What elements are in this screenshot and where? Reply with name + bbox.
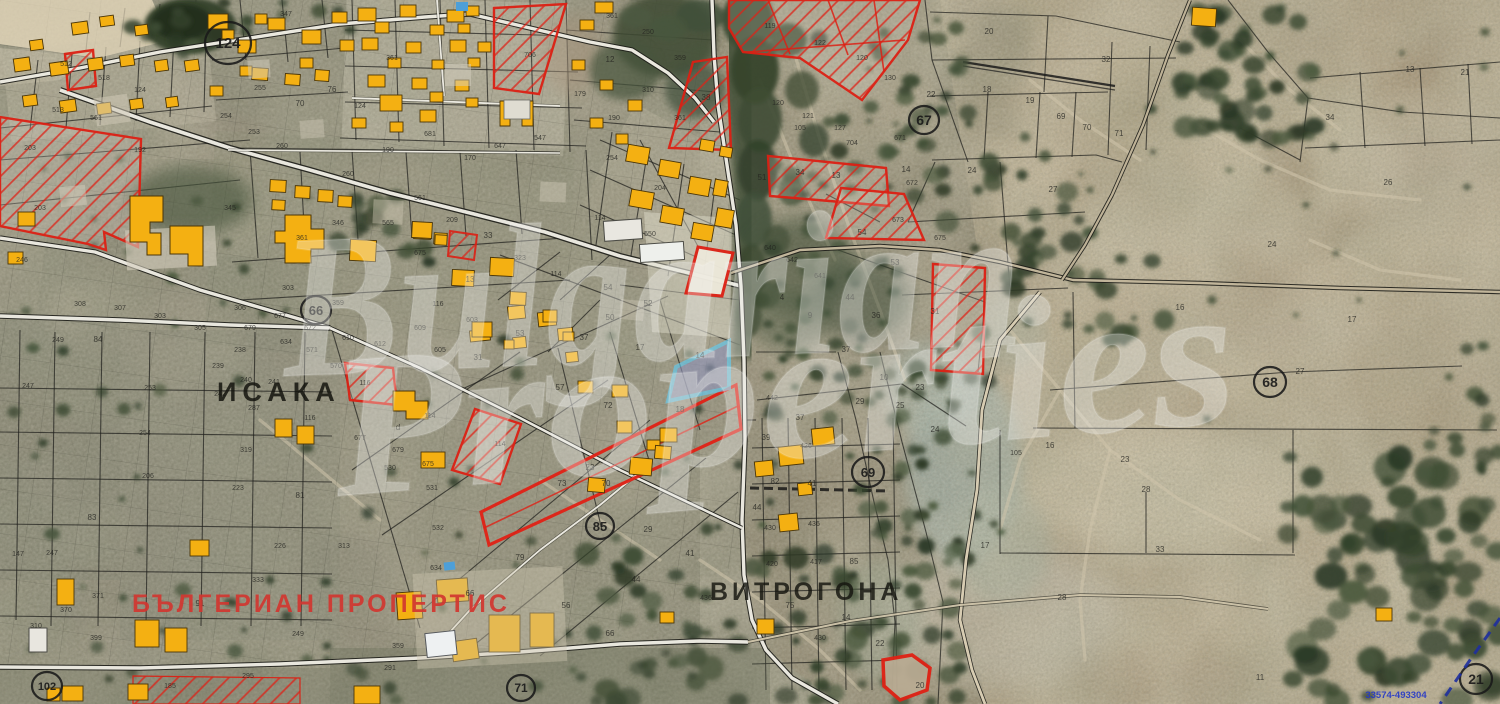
svg-text:203: 203 bbox=[34, 205, 46, 212]
svg-text:430: 430 bbox=[764, 525, 776, 532]
svg-text:67: 67 bbox=[916, 112, 932, 128]
svg-text:56: 56 bbox=[562, 601, 571, 610]
svg-text:310: 310 bbox=[642, 87, 654, 94]
svg-text:250: 250 bbox=[642, 29, 654, 36]
svg-text:306: 306 bbox=[234, 305, 246, 312]
svg-text:547: 547 bbox=[534, 135, 546, 142]
svg-text:347: 347 bbox=[280, 11, 292, 18]
svg-text:21: 21 bbox=[1468, 671, 1484, 687]
svg-text:190: 190 bbox=[608, 115, 620, 122]
svg-text:20: 20 bbox=[916, 681, 925, 690]
svg-text:239: 239 bbox=[212, 363, 224, 370]
svg-text:81: 81 bbox=[296, 491, 305, 500]
svg-text:247: 247 bbox=[22, 383, 34, 390]
svg-text:417: 417 bbox=[810, 559, 822, 566]
svg-text:120: 120 bbox=[772, 100, 784, 107]
svg-text:512: 512 bbox=[60, 61, 72, 68]
svg-text:26: 26 bbox=[1384, 178, 1393, 187]
svg-text:124: 124 bbox=[134, 87, 146, 94]
svg-text:513: 513 bbox=[52, 107, 64, 114]
svg-text:69: 69 bbox=[1057, 112, 1066, 121]
svg-text:19: 19 bbox=[1026, 96, 1035, 105]
svg-text:206: 206 bbox=[142, 473, 154, 480]
svg-text:122: 122 bbox=[814, 40, 826, 47]
svg-text:БЪЛГЕРИАН ПРОПЕРТИС: БЪЛГЕРИАН ПРОПЕРТИС bbox=[132, 590, 510, 618]
svg-text:130: 130 bbox=[884, 75, 896, 82]
svg-text:102: 102 bbox=[38, 681, 56, 693]
svg-text:27: 27 bbox=[1296, 367, 1305, 376]
svg-text:ВИТРОГОНА: ВИТРОГОНА bbox=[710, 578, 902, 606]
svg-text:38: 38 bbox=[702, 93, 711, 102]
svg-text:11: 11 bbox=[1256, 673, 1265, 682]
svg-text:124: 124 bbox=[215, 35, 241, 52]
svg-text:170: 170 bbox=[464, 155, 476, 162]
svg-text:17: 17 bbox=[981, 541, 990, 550]
svg-text:85: 85 bbox=[850, 557, 859, 566]
svg-text:370: 370 bbox=[60, 607, 72, 614]
svg-text:254: 254 bbox=[139, 430, 151, 437]
svg-text:18: 18 bbox=[983, 85, 992, 94]
svg-text:671: 671 bbox=[894, 135, 906, 142]
svg-text:291: 291 bbox=[384, 665, 396, 672]
svg-text:70: 70 bbox=[1083, 123, 1092, 132]
svg-text:71: 71 bbox=[1115, 129, 1124, 138]
svg-text:119: 119 bbox=[764, 23, 775, 30]
svg-text:121: 121 bbox=[802, 113, 814, 120]
svg-text:260: 260 bbox=[276, 143, 288, 150]
svg-text:27: 27 bbox=[1049, 185, 1058, 194]
svg-text:313: 313 bbox=[338, 543, 350, 550]
svg-text:253: 253 bbox=[144, 385, 156, 392]
svg-text:68: 68 bbox=[1262, 374, 1278, 390]
svg-text:359: 359 bbox=[674, 55, 686, 62]
svg-text:295: 295 bbox=[242, 673, 254, 680]
svg-text:223: 223 bbox=[232, 485, 244, 492]
svg-text:79: 79 bbox=[516, 553, 525, 562]
svg-text:647: 647 bbox=[494, 143, 506, 150]
svg-text:33574-493304: 33574-493304 bbox=[1365, 690, 1427, 701]
svg-text:345: 345 bbox=[224, 205, 236, 212]
svg-text:190: 190 bbox=[382, 147, 394, 154]
svg-text:307: 307 bbox=[114, 305, 126, 312]
svg-text:34: 34 bbox=[1326, 113, 1335, 122]
svg-text:28: 28 bbox=[1142, 485, 1151, 494]
svg-text:254: 254 bbox=[220, 113, 232, 120]
svg-text:634: 634 bbox=[430, 565, 442, 572]
svg-text:361: 361 bbox=[386, 55, 398, 62]
svg-text:105: 105 bbox=[794, 125, 806, 132]
svg-text:679: 679 bbox=[244, 325, 256, 332]
svg-text:308: 308 bbox=[74, 301, 86, 308]
svg-text:147: 147 bbox=[12, 551, 24, 558]
svg-text:12: 12 bbox=[606, 55, 615, 64]
svg-text:85: 85 bbox=[593, 519, 607, 534]
svg-text:254: 254 bbox=[606, 155, 618, 162]
svg-text:518: 518 bbox=[98, 75, 110, 82]
svg-text:249: 249 bbox=[52, 337, 64, 344]
svg-text:29: 29 bbox=[644, 525, 653, 534]
svg-text:226: 226 bbox=[274, 543, 286, 550]
svg-text:127: 127 bbox=[834, 125, 846, 132]
svg-text:33: 33 bbox=[1156, 545, 1165, 554]
svg-text:561: 561 bbox=[90, 115, 102, 122]
svg-text:28: 28 bbox=[1058, 593, 1067, 602]
svg-text:310: 310 bbox=[30, 623, 42, 630]
svg-text:14: 14 bbox=[842, 613, 851, 622]
svg-text:238: 238 bbox=[234, 347, 246, 354]
svg-text:253: 253 bbox=[248, 129, 260, 136]
svg-text:399: 399 bbox=[90, 635, 102, 642]
svg-text:185: 185 bbox=[164, 683, 176, 690]
svg-text:681: 681 bbox=[424, 131, 436, 138]
svg-text:76: 76 bbox=[328, 85, 337, 94]
svg-text:361: 361 bbox=[606, 13, 618, 20]
svg-text:436: 436 bbox=[808, 521, 820, 528]
svg-text:333: 333 bbox=[252, 577, 264, 584]
svg-text:41: 41 bbox=[686, 549, 695, 558]
svg-text:246: 246 bbox=[16, 257, 28, 264]
svg-text:192: 192 bbox=[134, 147, 146, 154]
svg-text:359: 359 bbox=[392, 643, 404, 650]
svg-text:17: 17 bbox=[1348, 315, 1357, 324]
svg-text:21: 21 bbox=[1461, 68, 1470, 77]
svg-text:22: 22 bbox=[876, 639, 885, 648]
svg-text:70: 70 bbox=[296, 99, 305, 108]
svg-text:255: 255 bbox=[254, 85, 266, 92]
svg-text:704: 704 bbox=[846, 140, 858, 147]
svg-text:32: 32 bbox=[1102, 55, 1111, 64]
svg-text:203: 203 bbox=[24, 145, 36, 152]
svg-text:420: 420 bbox=[766, 561, 778, 568]
svg-text:84: 84 bbox=[94, 335, 103, 344]
svg-text:247: 247 bbox=[46, 550, 58, 557]
svg-text:371: 371 bbox=[92, 593, 104, 600]
svg-text:361: 361 bbox=[674, 115, 686, 122]
svg-text:179: 179 bbox=[574, 91, 586, 98]
svg-text:305: 305 bbox=[194, 325, 206, 332]
svg-text:22: 22 bbox=[927, 90, 936, 99]
svg-text:13: 13 bbox=[1406, 65, 1415, 74]
svg-text:71: 71 bbox=[514, 681, 528, 695]
svg-text:83: 83 bbox=[88, 513, 97, 522]
svg-text:706: 706 bbox=[524, 52, 536, 59]
svg-text:319: 319 bbox=[240, 447, 252, 454]
svg-text:24: 24 bbox=[1268, 240, 1277, 249]
svg-text:260: 260 bbox=[342, 171, 354, 178]
svg-text:124: 124 bbox=[354, 103, 366, 110]
svg-text:303: 303 bbox=[154, 313, 166, 320]
svg-text:20: 20 bbox=[985, 27, 994, 36]
svg-text:66: 66 bbox=[606, 629, 615, 638]
svg-text:44: 44 bbox=[632, 575, 641, 584]
svg-text:120: 120 bbox=[856, 55, 868, 62]
svg-text:249: 249 bbox=[292, 631, 304, 638]
svg-text:430: 430 bbox=[814, 635, 826, 642]
